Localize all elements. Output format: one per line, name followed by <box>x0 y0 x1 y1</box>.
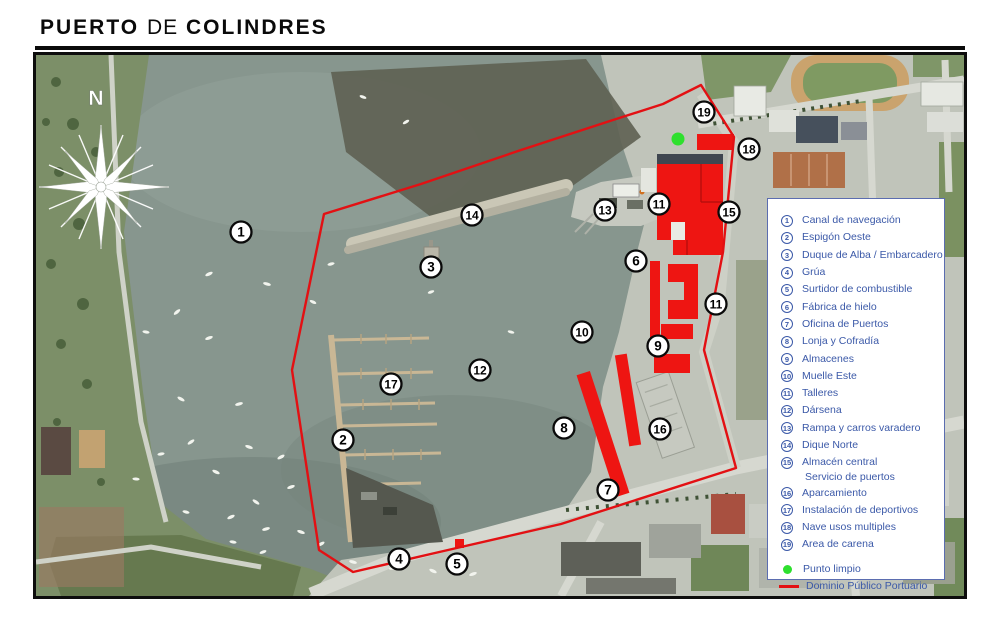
legend-item-16: 16Aparcamiento <box>781 484 940 501</box>
legend-item-4: 4Grúa <box>781 264 940 281</box>
legend-item-18: 18Nave usos multiples <box>781 519 940 536</box>
svg-text:13: 13 <box>598 204 612 218</box>
legend-number-circle: 19 <box>781 539 793 551</box>
map-marker-15: 15 <box>719 202 740 223</box>
legend-item-15: 15Almacén central <box>781 454 940 471</box>
compass-n-label: N <box>88 87 103 110</box>
map-marker-10: 10 <box>572 322 593 343</box>
legend-number-circle: 1 <box>781 215 793 227</box>
legend-item-12: 12Dársena <box>781 402 940 419</box>
brown-field <box>39 507 124 587</box>
svg-text:2: 2 <box>339 433 347 448</box>
map-marker-16: 16 <box>650 419 671 440</box>
legend-number-circle: 6 <box>781 301 793 313</box>
legend-number-circle: 8 <box>781 336 793 348</box>
map-marker-1: 1 <box>231 222 252 243</box>
map-marker-7: 7 <box>598 480 619 501</box>
legend-item-label: Espigón Oeste <box>802 232 871 243</box>
legend-item-label: Lonja y Cofradía <box>802 336 879 347</box>
svg-text:5: 5 <box>453 557 461 572</box>
legend-item-label: Aparcamiento <box>802 488 867 499</box>
map-marker-14: 14 <box>462 205 483 226</box>
legend-item-label: Fábrica de hielo <box>802 302 877 313</box>
legend-list: 1Canal de navegación2Espigón Oeste3Duque… <box>781 212 940 554</box>
map-marker-11: 11 <box>706 294 727 315</box>
svg-text:16: 16 <box>653 423 667 437</box>
legend-item-label: Surtidor de combustible <box>802 284 912 295</box>
map-marker-17: 17 <box>381 374 402 395</box>
legend-item-label: Talleres <box>802 388 838 399</box>
building-bar <box>661 324 693 339</box>
quay-building <box>383 507 397 515</box>
map-marker-2: 2 <box>333 430 354 451</box>
svg-text:14: 14 <box>465 209 479 223</box>
map-marker-6: 6 <box>626 251 647 272</box>
title-part-2: DE <box>147 16 178 39</box>
legend-number-circle: 3 <box>781 249 793 261</box>
svg-text:17: 17 <box>384 378 398 392</box>
shed-grey <box>627 200 643 209</box>
building-18-nave <box>697 134 734 150</box>
legend-item-10: 10Muelle Este <box>781 368 940 385</box>
legend-number-circle: 11 <box>781 388 793 400</box>
svg-text:6: 6 <box>632 254 640 269</box>
side-street <box>869 97 873 212</box>
legend-item-label: Nave usos multiples <box>802 522 896 533</box>
legend-number-circle: 5 <box>781 284 793 296</box>
map-marker-5: 5 <box>447 554 468 575</box>
punto-limpio-legend-icon <box>783 565 792 574</box>
svg-text:19: 19 <box>697 106 711 120</box>
legend-item-label: Grúa <box>802 267 825 278</box>
svg-text:15: 15 <box>722 206 736 220</box>
legend-item-8: 8Lonja y Cofradía <box>781 333 940 350</box>
map-marker-18: 18 <box>739 139 760 160</box>
scrub <box>736 260 768 420</box>
building-notch <box>671 222 685 240</box>
legend-item-label: Dique Norte <box>802 440 858 451</box>
svg-text:7: 7 <box>604 483 612 498</box>
legend-number-circle: 17 <box>781 504 793 516</box>
map-marker-8: 8 <box>554 418 575 439</box>
legend-item-label: Instalación de deportivos <box>802 505 918 516</box>
legend-item-5: 5Surtidor de combustible <box>781 281 940 298</box>
legend-item-label: Dársena <box>802 405 842 416</box>
legend-number-circle: 13 <box>781 422 793 434</box>
legend-box: 1Canal de navegación2Espigón Oeste3Duque… <box>767 198 945 580</box>
legend-item-label: Punto limpio <box>803 564 861 575</box>
legend-item-19: 19Area de carena <box>781 536 940 553</box>
legend-number-circle: 16 <box>781 487 793 499</box>
map-marker-11: 11 <box>649 194 670 215</box>
legend-item-15-line2: Servicio de puertos <box>781 471 940 484</box>
dark-roof <box>657 154 723 164</box>
svg-text:18: 18 <box>742 143 756 157</box>
legend-item-label: Almacenes <box>802 354 854 365</box>
boundary-line-legend-icon <box>779 585 799 588</box>
punto-limpio-dot <box>672 133 685 146</box>
page-title: PUERTO DE COLINDRES <box>40 16 328 40</box>
legend-item-label: Servicio de puertos <box>805 472 895 483</box>
legend-number-circle: 12 <box>781 405 793 417</box>
svg-text:9: 9 <box>654 339 662 354</box>
map-marker-19: 19 <box>694 102 715 123</box>
legend-number-circle: 9 <box>781 353 793 365</box>
legend-item-punto-limpio: Punto limpio <box>781 561 940 578</box>
map-marker-13: 13 <box>595 200 616 221</box>
legend-item-label: Duque de Alba / Embarcadero <box>802 250 943 261</box>
tan-court <box>79 430 105 468</box>
legend-item-17: 17Instalación de deportivos <box>781 502 940 519</box>
legend-item-2: 2Espigón Oeste <box>781 229 940 246</box>
quay-building <box>361 492 377 500</box>
legend-item-label: Oficina de Puertos <box>802 319 888 330</box>
shed <box>613 184 639 197</box>
legend-item-label: Dominio Público Portuario <box>806 581 927 592</box>
svg-text:3: 3 <box>427 260 435 275</box>
map-marker-9: 9 <box>648 336 669 357</box>
svg-text:1: 1 <box>237 225 245 240</box>
map-marker-4: 4 <box>389 549 410 570</box>
legend-number-circle: 4 <box>781 267 793 279</box>
legend-number-circle: 14 <box>781 440 793 452</box>
legend-number-circle: 10 <box>781 370 793 382</box>
legend-item-3: 3Duque de Alba / Embarcadero <box>781 247 940 264</box>
green-corner <box>913 55 964 77</box>
legend-item-13: 13Rampa y carros varadero <box>781 420 940 437</box>
legend-item-label: Rampa y carros varadero <box>802 423 920 434</box>
legend-item-label: Almacén central <box>802 457 877 468</box>
legend-item-7: 7Oficina de Puertos <box>781 316 940 333</box>
legend-number-circle: 7 <box>781 318 793 330</box>
building-strip <box>650 261 660 339</box>
legend-item-1: 1Canal de navegación <box>781 212 940 229</box>
title-part-3: COLINDRES <box>186 16 328 39</box>
legend-number-circle: 2 <box>781 232 793 244</box>
legend-item-label: Area de carena <box>802 539 874 550</box>
svg-text:4: 4 <box>395 552 403 567</box>
legend-item-11: 11Talleres <box>781 385 940 402</box>
svg-text:10: 10 <box>575 326 589 340</box>
white-building <box>641 168 656 192</box>
legend-item-dominio: Dominio Público Portuario <box>781 578 940 595</box>
title-part-1: PUERTO <box>40 16 139 39</box>
legend-item-9: 9Almacenes <box>781 350 940 367</box>
legend-item-14: 14Dique Norte <box>781 437 940 454</box>
title-rule <box>35 46 965 50</box>
legend-item-label: Muelle Este <box>802 371 857 382</box>
map-marker-3: 3 <box>421 257 442 278</box>
legend-number-circle: 18 <box>781 522 793 534</box>
svg-text:11: 11 <box>653 198 666 212</box>
legend-item-6: 6Fábrica de hielo <box>781 298 940 315</box>
legend-item-label: Canal de navegación <box>802 215 901 226</box>
svg-text:8: 8 <box>560 421 568 436</box>
svg-text:12: 12 <box>473 364 487 378</box>
map-marker-12: 12 <box>470 360 491 381</box>
legend-number-circle: 15 <box>781 457 793 469</box>
dark-building <box>41 427 71 475</box>
svg-text:11: 11 <box>710 298 723 312</box>
page: PUERTO DE COLINDRES <box>0 0 1000 641</box>
